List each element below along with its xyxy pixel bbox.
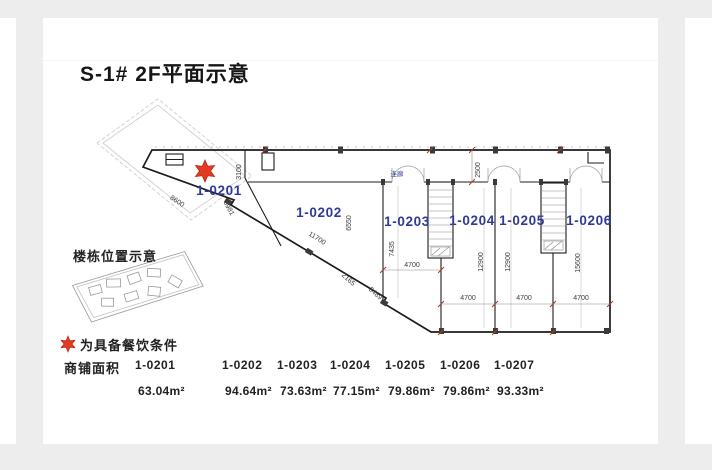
unit-label-1-0204: 1-0204 xyxy=(449,213,495,228)
unit-area: 79.86m² xyxy=(443,384,490,398)
dim-2165: 2165 xyxy=(340,272,356,288)
corridor-label: 连廊 xyxy=(391,169,405,178)
dim-4700-b: 4700 xyxy=(460,295,476,302)
page-title: S-1# 2F平面示意 xyxy=(80,58,250,88)
dim-4700-d: 4700 xyxy=(573,295,589,302)
dim-8600: 8600 xyxy=(168,195,185,209)
unit-id: 1-0207 xyxy=(494,358,534,372)
unit-id: 1-0206 xyxy=(440,358,480,372)
viewer-top-band xyxy=(0,0,712,18)
unit-area: 94.64m² xyxy=(225,384,272,398)
dim-12900-b: 12900 xyxy=(505,252,512,272)
unit-id: 1-0201 xyxy=(135,358,175,372)
unit-id: 1-0203 xyxy=(277,358,317,372)
table-row-label: 商铺面积 xyxy=(64,358,120,377)
dim-2500: 2500 xyxy=(475,162,482,178)
unit-area: 77.15m² xyxy=(333,384,380,398)
unit-area: 93.33m² xyxy=(497,384,544,398)
dim-12900-a: 12900 xyxy=(478,252,485,272)
shop-area-table: 商铺面积 1-0201 63.04m² 1-0202 94.64m² 1-020… xyxy=(0,356,660,408)
dim-3100: 3100 xyxy=(236,164,243,180)
dim-4700-c: 4700 xyxy=(516,295,532,302)
catering-star-icon xyxy=(196,160,215,182)
unit-area: 73.63m² xyxy=(280,384,327,398)
unit-id: 1-0204 xyxy=(330,358,370,372)
viewer-bottom-band xyxy=(0,444,712,470)
catering-legend-note: 为具备餐饮条件 xyxy=(80,335,178,354)
page-gap-right xyxy=(658,18,685,444)
next-page-sliver[interactable] xyxy=(685,18,712,444)
unit-label-1-0206: 1-0206 xyxy=(566,213,612,228)
location-diagram-title: 楼栋位置示意 xyxy=(73,246,157,265)
page-gap-left xyxy=(16,18,43,444)
unit-label-1-0205: 1-0205 xyxy=(499,213,545,228)
dim-15600: 15600 xyxy=(575,253,582,273)
prev-page-sliver[interactable] xyxy=(0,18,16,444)
unit-label-1-0203: 1-0203 xyxy=(384,214,430,229)
catering-star-legend-icon xyxy=(61,336,75,352)
unit-area: 63.04m² xyxy=(138,384,185,398)
unit-label-1-0202: 1-0202 xyxy=(296,205,342,220)
page-divider-line xyxy=(0,60,712,61)
unit-id: 1-0202 xyxy=(222,358,262,372)
dim-4700-a: 4700 xyxy=(404,262,420,269)
dim-3489: 3489 xyxy=(367,286,383,302)
unit-labels: 1-0201 1-0202 1-0203 1-0204 1-0205 1-020… xyxy=(196,169,612,229)
unit-area: 79.86m² xyxy=(388,384,435,398)
unit-id: 1-0205 xyxy=(385,358,425,372)
dim-11700: 11700 xyxy=(307,231,327,247)
unit-label-1-0201: 1-0201 xyxy=(196,183,242,198)
dim-6550: 6550 xyxy=(346,215,353,231)
dim-7435: 7435 xyxy=(389,241,396,257)
